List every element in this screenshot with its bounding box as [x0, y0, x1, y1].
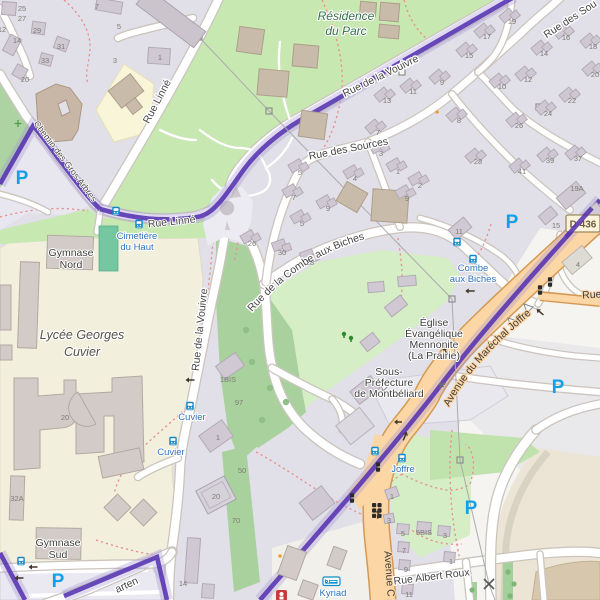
- svg-text:Cimetière: Cimetière: [117, 231, 158, 242]
- svg-text:Combe: Combe: [458, 263, 489, 274]
- svg-text:26: 26: [515, 121, 523, 130]
- svg-text:11: 11: [409, 87, 417, 96]
- svg-text:P: P: [465, 498, 478, 519]
- svg-text:12: 12: [524, 75, 532, 84]
- svg-text:7: 7: [402, 546, 406, 555]
- svg-text:97: 97: [235, 398, 243, 407]
- svg-text:50: 50: [238, 466, 246, 475]
- svg-text:2: 2: [418, 181, 422, 190]
- svg-text:du Parc: du Parc: [325, 24, 366, 38]
- svg-text:11: 11: [405, 590, 413, 599]
- svg-text:3: 3: [113, 56, 117, 65]
- svg-text:25: 25: [18, 4, 26, 13]
- svg-text:P: P: [16, 168, 29, 189]
- svg-text:41: 41: [518, 167, 526, 176]
- svg-text:14: 14: [179, 579, 187, 588]
- svg-text:3: 3: [387, 516, 391, 525]
- svg-text:8: 8: [457, 116, 461, 125]
- svg-text:Cuvier: Cuvier: [178, 412, 205, 423]
- svg-text:14: 14: [13, 36, 21, 45]
- svg-text:18: 18: [589, 42, 597, 51]
- svg-text:28: 28: [306, 258, 314, 267]
- svg-text:aux Biches: aux Biches: [450, 274, 497, 285]
- svg-text:5: 5: [298, 168, 302, 177]
- svg-text:Rue: Rue: [582, 288, 600, 301]
- svg-text:37: 37: [574, 154, 582, 163]
- svg-text:19: 19: [508, 17, 516, 26]
- svg-text:Nord: Nord: [60, 259, 83, 271]
- svg-text:9: 9: [404, 565, 408, 574]
- svg-text:1BIS: 1BIS: [220, 375, 236, 384]
- svg-text:39: 39: [546, 156, 554, 165]
- svg-text:15: 15: [465, 51, 473, 60]
- svg-text:7: 7: [292, 193, 296, 202]
- svg-text:15: 15: [552, 221, 560, 230]
- svg-text:1: 1: [449, 557, 453, 566]
- svg-text:(La Prairie): (La Prairie): [408, 350, 460, 362]
- svg-text:5: 5: [401, 529, 405, 538]
- svg-text:20: 20: [21, 75, 29, 84]
- svg-text:30: 30: [278, 248, 286, 257]
- svg-text:32A: 32A: [10, 494, 23, 503]
- svg-text:19A: 19A: [570, 184, 583, 193]
- svg-text:20: 20: [212, 492, 220, 501]
- svg-text:1: 1: [396, 167, 400, 176]
- svg-text:Gymnase: Gymnase: [36, 537, 81, 549]
- svg-text:17: 17: [483, 32, 491, 41]
- svg-text:20: 20: [61, 413, 69, 422]
- svg-text:Cuvier: Cuvier: [157, 447, 184, 458]
- svg-text:9: 9: [440, 78, 444, 87]
- svg-text:33: 33: [41, 56, 49, 65]
- svg-text:de Montbéliard: de Montbéliard: [354, 388, 424, 400]
- svg-text:du Haut: du Haut: [120, 242, 154, 253]
- svg-text:31: 31: [57, 42, 65, 51]
- svg-text:Sud: Sud: [49, 549, 68, 561]
- svg-text:P: P: [52, 571, 65, 592]
- svg-text:3: 3: [379, 149, 383, 158]
- svg-text:16: 16: [562, 33, 570, 42]
- svg-text:P: P: [506, 212, 519, 233]
- svg-text:12: 12: [0, 25, 6, 34]
- svg-text:26: 26: [248, 239, 256, 248]
- svg-text:7: 7: [376, 128, 380, 137]
- svg-text:5BIS: 5BIS: [416, 528, 432, 537]
- svg-text:Kyriad: Kyriad: [320, 588, 347, 599]
- svg-text:Cuvier: Cuvier: [64, 345, 101, 359]
- svg-text:13: 13: [383, 96, 391, 105]
- svg-text:27: 27: [18, 14, 26, 23]
- svg-text:5: 5: [300, 219, 304, 228]
- svg-text:Lycée Georges: Lycée Georges: [40, 328, 125, 342]
- svg-text:9: 9: [326, 204, 330, 213]
- svg-text:70: 70: [232, 516, 240, 525]
- svg-text:4: 4: [576, 260, 580, 269]
- svg-text:Gymnase: Gymnase: [49, 247, 94, 259]
- svg-text:29: 29: [33, 26, 41, 35]
- svg-text:9: 9: [405, 194, 409, 203]
- svg-text:10: 10: [498, 82, 506, 91]
- svg-text:20: 20: [591, 70, 599, 79]
- svg-text:1: 1: [216, 433, 220, 442]
- svg-text:7: 7: [95, 2, 99, 11]
- svg-text:5: 5: [117, 22, 121, 31]
- svg-text:Résidence: Résidence: [318, 9, 375, 23]
- svg-text:11: 11: [455, 227, 463, 236]
- svg-text:28: 28: [474, 157, 482, 166]
- svg-text:22: 22: [568, 96, 576, 105]
- svg-text:4: 4: [353, 174, 357, 183]
- svg-text:3: 3: [443, 531, 447, 540]
- svg-text:Joffre: Joffre: [391, 464, 415, 475]
- svg-text:14: 14: [540, 49, 548, 58]
- svg-text:1: 1: [158, 53, 162, 62]
- svg-text:1: 1: [390, 492, 394, 501]
- svg-text:24: 24: [544, 109, 552, 118]
- svg-text:P: P: [552, 377, 565, 398]
